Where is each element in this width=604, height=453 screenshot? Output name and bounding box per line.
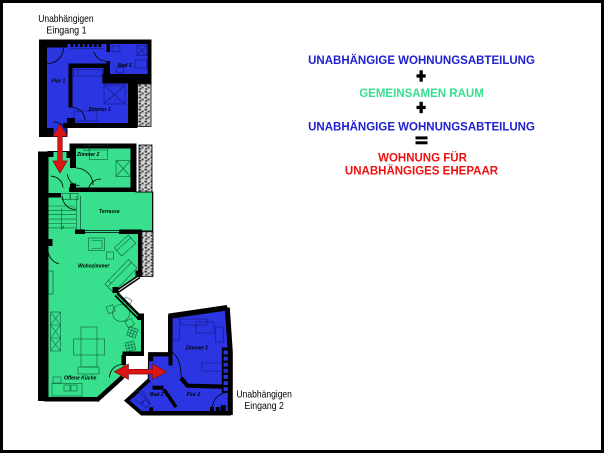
svg-text:Unabhängigen: Unabhängigen <box>38 14 93 25</box>
svg-text:Terrasse: Terrasse <box>99 209 120 215</box>
svg-text:Eingang 2: Eingang 2 <box>244 401 284 412</box>
svg-text:Bad 2: Bad 2 <box>150 392 164 398</box>
svg-text:Offene Küche: Offene Küche <box>64 376 97 382</box>
svg-text:GEMEINSAMEN RAUM: GEMEINSAMEN RAUM <box>359 88 484 100</box>
svg-text:Zimmer 2: Zimmer 2 <box>76 152 99 158</box>
svg-text:Flur 2: Flur 2 <box>187 392 201 398</box>
svg-text:UNABHÄNGIGE WOHNUNGSABTEILUNG: UNABHÄNGIGE WOHNUNGSABTEILUNG <box>308 120 535 133</box>
svg-text:Wohnzimmer: Wohnzimmer <box>78 264 110 270</box>
svg-text:UNABHÄNGIGE WOHNUNGSABTEILUNG: UNABHÄNGIGE WOHNUNGSABTEILUNG <box>308 54 535 67</box>
svg-text:Eingang 1: Eingang 1 <box>46 26 86 37</box>
svg-text:Zimmer 1: Zimmer 1 <box>88 107 111 113</box>
svg-text:Zimmer 3: Zimmer 3 <box>185 346 208 352</box>
svg-text:Unabhängigen: Unabhängigen <box>237 389 292 400</box>
svg-text:Flur 1: Flur 1 <box>52 79 66 85</box>
svg-text:WOHNUNG FÜR: WOHNUNG FÜR <box>378 151 467 164</box>
svg-text:Bad 1: Bad 1 <box>118 63 132 69</box>
svg-text:UNABHÄNGIGES EHEPAAR: UNABHÄNGIGES EHEPAAR <box>345 165 499 178</box>
